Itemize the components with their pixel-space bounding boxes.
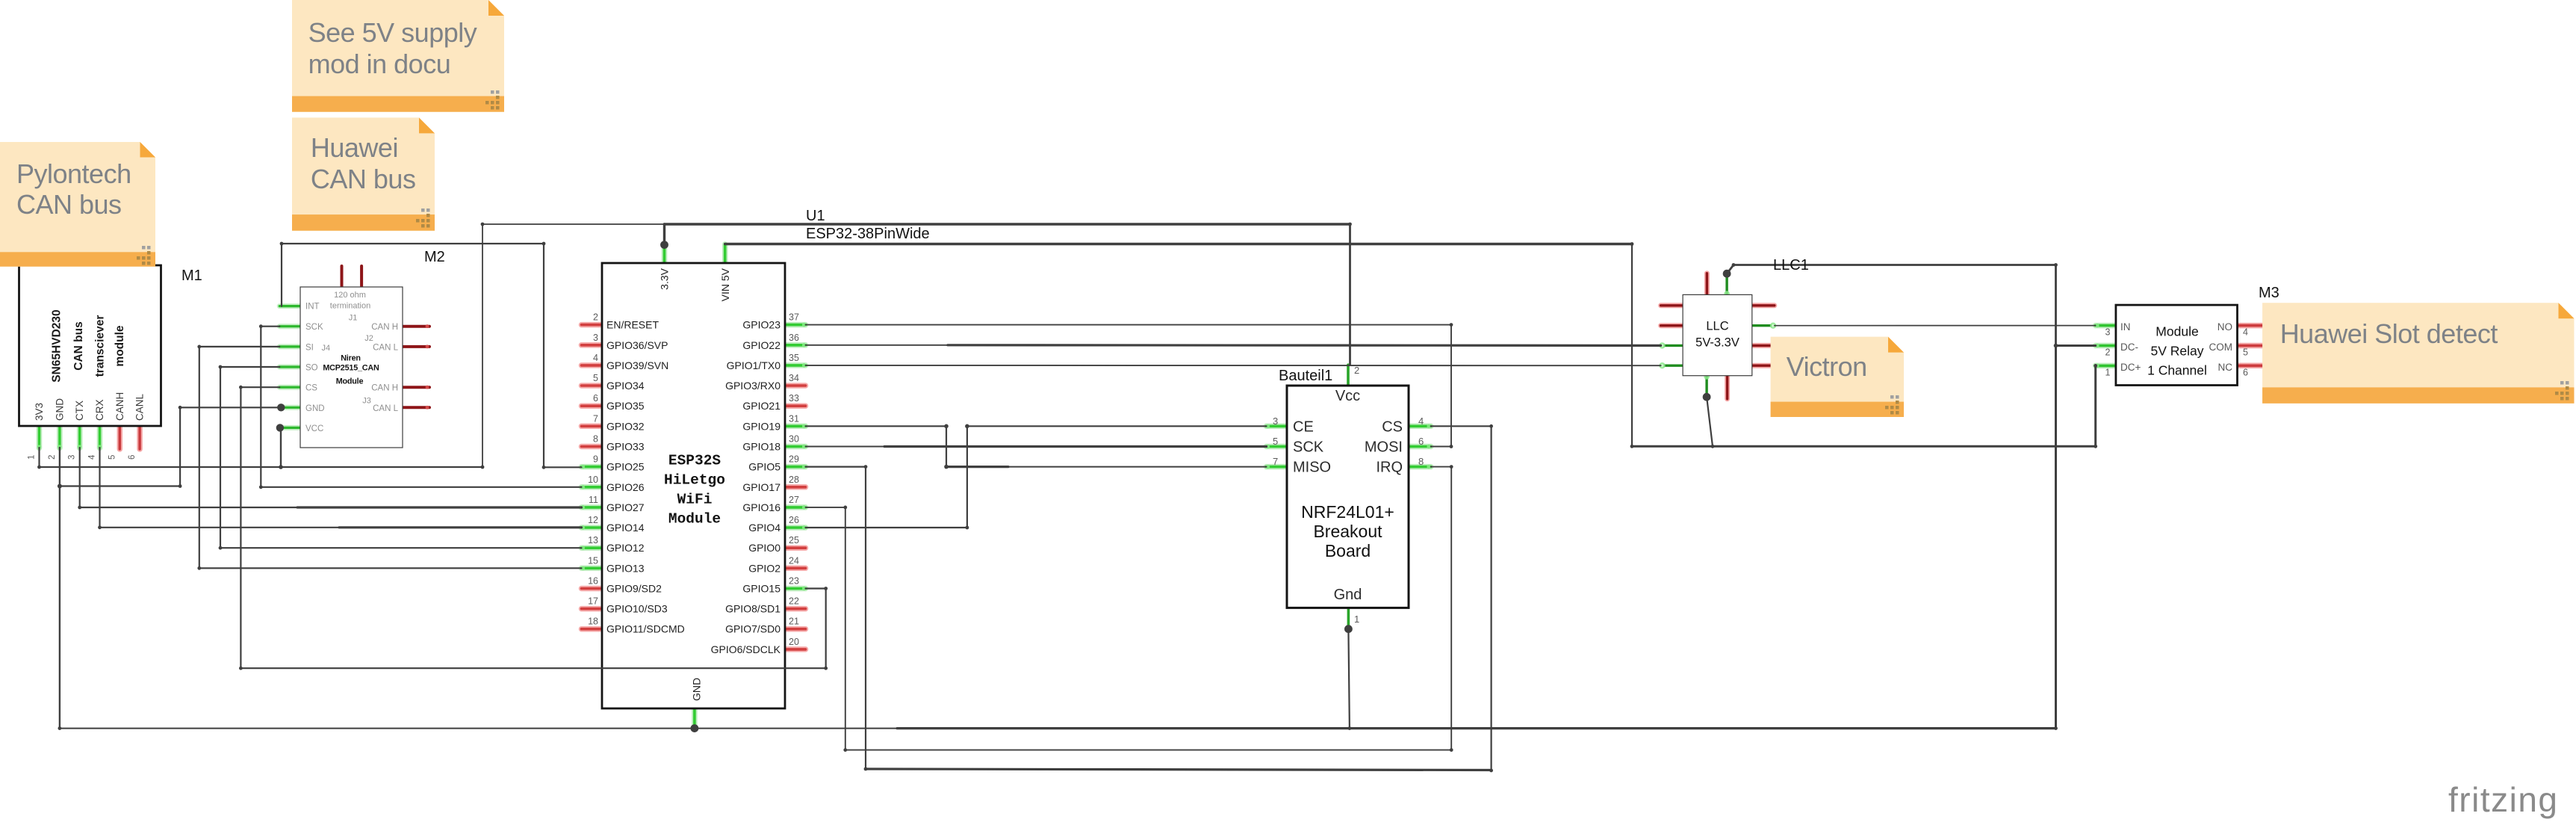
- svg-text:fritzing: fritzing: [2448, 780, 2558, 819]
- svg-text:4: 4: [88, 454, 97, 460]
- svg-text:Gnd: Gnd: [1334, 587, 1362, 603]
- svg-text:30: 30: [789, 434, 799, 445]
- svg-text:GPIO10/SD3: GPIO10/SD3: [606, 603, 668, 615]
- svg-text:7: 7: [593, 413, 598, 424]
- svg-text:3: 3: [68, 455, 77, 460]
- svg-text:Module: Module: [2156, 324, 2198, 339]
- svg-text:28: 28: [789, 475, 799, 485]
- svg-text:3: 3: [1273, 415, 1278, 427]
- svg-text:1: 1: [1354, 614, 1359, 625]
- svg-text:2: 2: [48, 455, 57, 460]
- svg-text:1: 1: [28, 455, 37, 460]
- svg-text:ESP32-38PinWide: ESP32-38PinWide: [806, 226, 930, 242]
- svg-text:mod in docu: mod in docu: [308, 49, 451, 79]
- svg-text:MOSI: MOSI: [1365, 439, 1403, 456]
- svg-text:NC: NC: [2218, 362, 2233, 373]
- svg-text:GPIO7/SD0: GPIO7/SD0: [725, 623, 780, 635]
- svg-text:5: 5: [108, 455, 117, 460]
- svg-text:10: 10: [588, 475, 598, 485]
- svg-text:Huawei Slot detect: Huawei Slot detect: [2280, 318, 2498, 349]
- svg-text:CANH: CANH: [114, 392, 125, 421]
- svg-text:CANL: CANL: [134, 393, 146, 421]
- svg-text:NRF24L01+: NRF24L01+: [1301, 502, 1394, 522]
- svg-text:Victron: Victron: [1787, 351, 1867, 382]
- svg-text:GPIO11/SDCMD: GPIO11/SDCMD: [606, 623, 685, 635]
- svg-text:GND: GND: [305, 404, 325, 413]
- svg-text:J1: J1: [349, 314, 358, 323]
- svg-text:3.3V: 3.3V: [659, 268, 671, 289]
- svg-text:termination: termination: [330, 302, 370, 311]
- svg-text:M2: M2: [424, 249, 445, 265]
- svg-text:GPIO21: GPIO21: [742, 400, 780, 412]
- svg-text:CAN H: CAN H: [371, 384, 398, 393]
- svg-text:24: 24: [789, 555, 799, 566]
- svg-text:12: 12: [588, 515, 598, 525]
- svg-text:GPIO32: GPIO32: [606, 420, 645, 432]
- svg-text:2: 2: [2105, 347, 2111, 357]
- svg-text:SCK: SCK: [1293, 439, 1324, 456]
- svg-text:LLC: LLC: [1706, 320, 1728, 333]
- svg-text:8: 8: [1418, 456, 1424, 467]
- svg-text:18: 18: [588, 617, 598, 627]
- svg-text:9: 9: [593, 454, 598, 465]
- svg-text:Module: Module: [336, 377, 364, 386]
- svg-text:3: 3: [593, 333, 598, 343]
- svg-text:3: 3: [2105, 327, 2111, 338]
- svg-text:GPIO26: GPIO26: [606, 481, 645, 493]
- svg-text:GND: GND: [691, 678, 703, 701]
- svg-text:5: 5: [593, 373, 598, 383]
- svg-text:Pylontech: Pylontech: [16, 158, 131, 189]
- svg-text:ESP32S: ESP32S: [668, 453, 721, 469]
- svg-text:GND: GND: [54, 398, 65, 421]
- svg-text:GPIO23: GPIO23: [742, 319, 780, 331]
- svg-text:20: 20: [789, 637, 799, 647]
- svg-text:7: 7: [1273, 456, 1278, 467]
- svg-text:WiFi: WiFi: [677, 492, 713, 508]
- svg-text:COM: COM: [2209, 342, 2233, 353]
- svg-text:34: 34: [789, 373, 799, 383]
- svg-text:26: 26: [789, 515, 799, 525]
- svg-text:120 ohm: 120 ohm: [334, 291, 366, 300]
- svg-text:6: 6: [2243, 367, 2248, 377]
- svg-text:GPIO6/SDCLK: GPIO6/SDCLK: [711, 643, 781, 655]
- svg-text:GPIO5: GPIO5: [748, 461, 780, 473]
- svg-text:GPIO15: GPIO15: [742, 583, 780, 595]
- svg-text:CE: CE: [1293, 418, 1314, 435]
- svg-text:3V3: 3V3: [34, 403, 45, 421]
- svg-text:INT: INT: [305, 303, 320, 312]
- svg-text:GPIO12: GPIO12: [606, 542, 645, 554]
- svg-text:Breakout: Breakout: [1313, 522, 1382, 541]
- svg-text:M1: M1: [181, 268, 202, 284]
- svg-text:SO: SO: [305, 364, 318, 373]
- svg-text:27: 27: [789, 495, 799, 505]
- svg-text:Niren: Niren: [341, 354, 361, 363]
- svg-text:CS: CS: [305, 384, 317, 393]
- svg-text:5V-3.3V: 5V-3.3V: [1695, 336, 1739, 350]
- svg-text:Module: Module: [668, 511, 721, 528]
- svg-text:37: 37: [789, 312, 799, 323]
- svg-text:IRQ: IRQ: [1376, 460, 1403, 476]
- svg-text:1: 1: [2105, 367, 2111, 377]
- svg-text:GPIO25: GPIO25: [606, 461, 645, 473]
- svg-text:23: 23: [789, 576, 799, 587]
- svg-text:CRX: CRX: [94, 399, 105, 421]
- svg-text:J4: J4: [322, 344, 331, 353]
- svg-text:Board: Board: [1325, 541, 1371, 560]
- svg-text:CS: CS: [1382, 418, 1403, 435]
- svg-text:29: 29: [789, 454, 799, 465]
- svg-text:6: 6: [1418, 436, 1424, 447]
- svg-text:M3: M3: [2259, 285, 2279, 301]
- svg-text:17: 17: [588, 596, 598, 607]
- svg-text:2: 2: [593, 312, 598, 323]
- svg-text:Vcc: Vcc: [1335, 388, 1360, 404]
- svg-text:CAN bus: CAN bus: [72, 321, 85, 370]
- svg-text:33: 33: [789, 393, 799, 404]
- svg-text:GPIO33: GPIO33: [606, 441, 645, 453]
- svg-text:6: 6: [593, 393, 598, 404]
- svg-text:DC+: DC+: [2120, 362, 2141, 373]
- svg-text:DC-: DC-: [2120, 342, 2138, 353]
- svg-text:GPIO9/SD2: GPIO9/SD2: [606, 583, 662, 595]
- svg-text:MISO: MISO: [1293, 460, 1331, 476]
- svg-text:CAN H: CAN H: [371, 323, 398, 332]
- svg-text:U1: U1: [806, 208, 825, 224]
- svg-text:35: 35: [789, 353, 799, 363]
- svg-text:4: 4: [1418, 415, 1424, 427]
- svg-text:CAN L: CAN L: [373, 404, 398, 413]
- svg-text:5V Relay: 5V Relay: [2150, 344, 2203, 359]
- svg-text:CAN bus: CAN bus: [16, 189, 122, 220]
- svg-text:transciever: transciever: [94, 315, 107, 377]
- svg-text:6: 6: [128, 455, 137, 460]
- svg-text:GPIO34: GPIO34: [606, 380, 645, 392]
- svg-text:GPIO13: GPIO13: [606, 562, 645, 574]
- svg-text:J2: J2: [364, 334, 373, 343]
- svg-text:GPIO3/RX0: GPIO3/RX0: [725, 380, 780, 392]
- svg-text:GPIO14: GPIO14: [606, 522, 645, 534]
- svg-text:13: 13: [588, 535, 598, 546]
- svg-text:5: 5: [1273, 436, 1278, 447]
- svg-text:16: 16: [588, 576, 598, 587]
- svg-text:See 5V supply: See 5V supply: [308, 17, 477, 48]
- svg-text:VIN 5V: VIN 5V: [719, 268, 731, 301]
- svg-text:GPIO39/SVN: GPIO39/SVN: [606, 359, 668, 371]
- svg-text:GPIO4: GPIO4: [748, 522, 780, 534]
- svg-text:EN/RESET: EN/RESET: [606, 319, 659, 331]
- svg-text:SCK: SCK: [305, 323, 323, 332]
- svg-text:Huawei: Huawei: [311, 132, 398, 163]
- svg-text:GPIO22: GPIO22: [742, 339, 780, 351]
- svg-text:GPIO19: GPIO19: [742, 420, 780, 432]
- svg-text:Bauteil1: Bauteil1: [1279, 368, 1332, 384]
- svg-text:VCC: VCC: [305, 424, 323, 433]
- svg-text:SI: SI: [305, 343, 314, 352]
- svg-text:LLC1: LLC1: [1773, 257, 1809, 274]
- svg-text:GPIO0: GPIO0: [748, 542, 780, 554]
- svg-text:IN: IN: [2120, 321, 2131, 333]
- svg-text:GPIO35: GPIO35: [606, 400, 645, 412]
- svg-text:GPIO17: GPIO17: [742, 481, 780, 493]
- svg-text:MCP2515_CAN: MCP2515_CAN: [323, 364, 379, 373]
- svg-text:11: 11: [589, 495, 598, 505]
- svg-text:SN65HVD230: SN65HVD230: [51, 309, 63, 382]
- svg-text:CAN L: CAN L: [373, 343, 398, 352]
- svg-text:GPIO27: GPIO27: [606, 501, 645, 513]
- svg-text:NO: NO: [2217, 321, 2232, 333]
- svg-text:GPIO1/TX0: GPIO1/TX0: [727, 359, 781, 371]
- svg-text:GPIO16: GPIO16: [742, 501, 780, 513]
- svg-text:1 Channel: 1 Channel: [2147, 363, 2207, 378]
- svg-text:CTX: CTX: [74, 401, 85, 421]
- svg-text:22: 22: [789, 596, 799, 607]
- svg-text:25: 25: [789, 535, 799, 546]
- svg-text:8: 8: [593, 434, 598, 445]
- svg-text:21: 21: [789, 617, 799, 627]
- svg-text:4: 4: [593, 353, 598, 363]
- svg-text:GPIO18: GPIO18: [742, 441, 780, 453]
- svg-text:CAN bus: CAN bus: [311, 164, 416, 194]
- svg-text:GPIO2: GPIO2: [748, 562, 780, 574]
- svg-text:4: 4: [2243, 327, 2248, 338]
- svg-text:31: 31: [789, 413, 799, 424]
- svg-text:2: 2: [1354, 365, 1359, 376]
- svg-text:HiLetgo: HiLetgo: [664, 472, 725, 489]
- svg-text:GPIO8/SD1: GPIO8/SD1: [725, 603, 780, 615]
- svg-text:module: module: [114, 325, 126, 366]
- svg-text:5: 5: [2243, 347, 2248, 357]
- svg-text:36: 36: [789, 333, 799, 343]
- svg-text:15: 15: [588, 555, 598, 566]
- svg-text:J3: J3: [362, 397, 371, 406]
- svg-text:GPIO36/SVP: GPIO36/SVP: [606, 339, 668, 351]
